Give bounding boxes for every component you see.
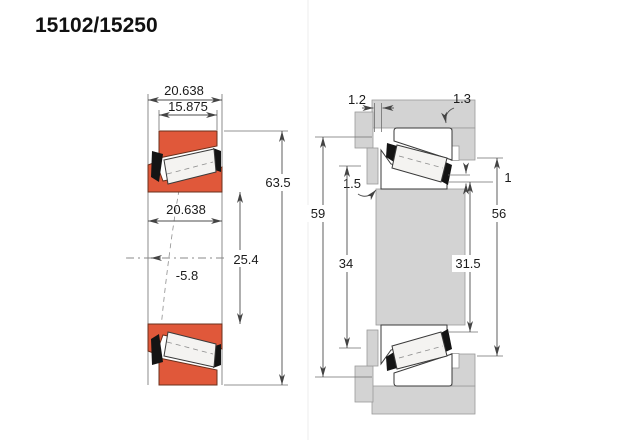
mounting-arrangement-view: 1.2 1.3 1.5 59 (304, 91, 512, 414)
technical-drawing: 20.638 15.875 63.5 20.638 (0, 0, 640, 440)
dim-cup-width: 15.875 (159, 99, 217, 115)
dim-shaft-backing-dia: 34 (333, 166, 361, 348)
bearing-cross-section-view: 20.638 15.875 63.5 20.638 (126, 83, 298, 385)
dim-label: 25.4 (233, 252, 258, 267)
bearing-datasheet-drawing: 15102/15250 (0, 0, 640, 440)
dim-load-center-label: -5.8 (176, 268, 198, 283)
shaft-shoulder-top (367, 148, 378, 184)
abutment-block-top (355, 112, 373, 148)
dim-label: 1.2 (348, 92, 366, 107)
dim-cone-width: 20.638 (148, 202, 222, 221)
dim-bore: 25.4 (228, 192, 262, 324)
dim-label: 59 (311, 206, 325, 221)
dim-label: 1.5 (343, 176, 361, 191)
dim-front-gap: 1 (448, 166, 512, 191)
housing-bottom (372, 386, 475, 414)
shaft (376, 189, 465, 325)
dim-label: 1 (504, 170, 511, 185)
dim-label: 63.5 (265, 175, 290, 190)
dim-label: 56 (492, 206, 506, 221)
dim-label: 15.875 (168, 99, 208, 114)
dim-label: 1.3 (453, 91, 471, 106)
dim-label: 34 (339, 256, 353, 271)
shaft-shoulder-bottom (367, 330, 378, 366)
dim-label: 20.638 (166, 202, 206, 217)
dim-overall-width: 20.638 (148, 83, 222, 100)
dim-label: 31.5 (455, 256, 480, 271)
dim-label: 20.638 (164, 83, 204, 98)
abutment-block-bottom (355, 366, 373, 402)
